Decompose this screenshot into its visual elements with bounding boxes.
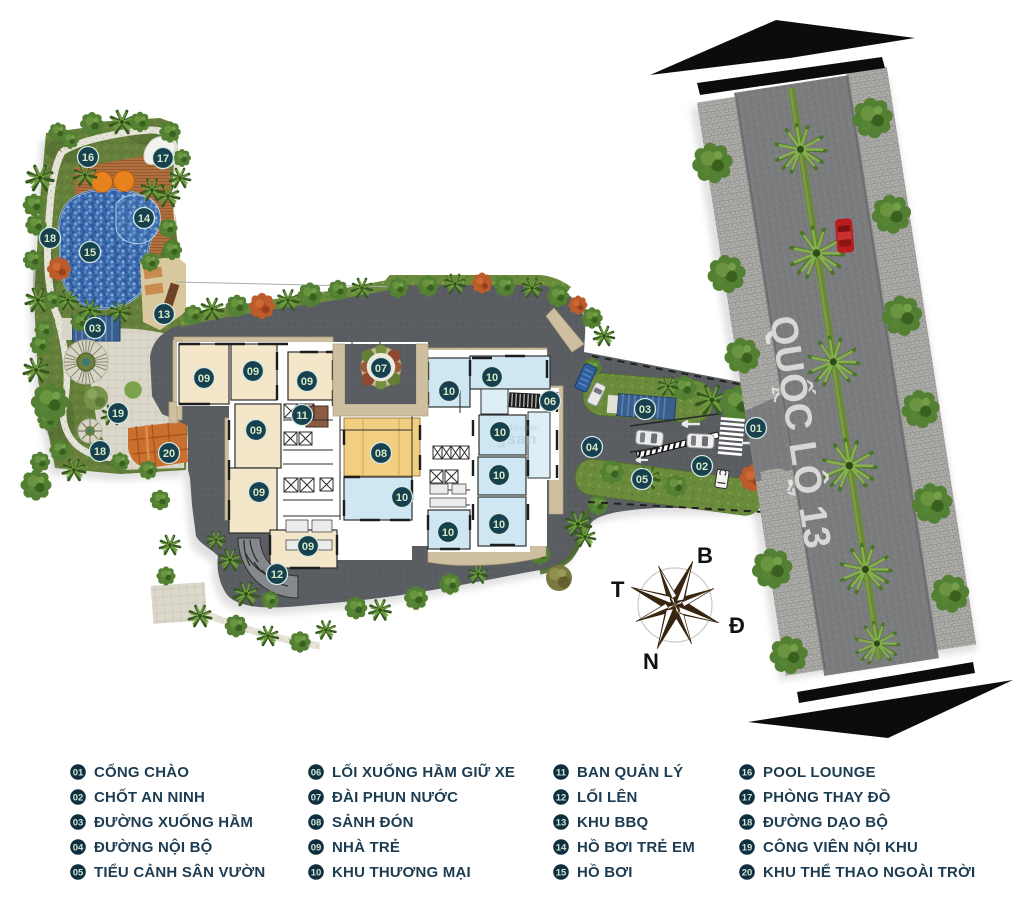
svg-text:19: 19	[112, 408, 124, 420]
svg-text:09: 09	[250, 425, 262, 437]
svg-text:N: N	[643, 649, 659, 674]
svg-text:ĐƯỜNG NỘI BỘ: ĐƯỜNG NỘI BỘ	[94, 838, 213, 856]
svg-text:12: 12	[556, 793, 567, 804]
svg-text:02: 02	[696, 461, 708, 473]
svg-text:BAN QUẢN LÝ: BAN QUẢN LÝ	[577, 763, 683, 781]
svg-text:02: 02	[73, 793, 84, 804]
svg-text:KHU THỂ THAO NGOÀI TRỜI: KHU THỂ THAO NGOÀI TRỜI	[763, 863, 975, 881]
svg-text:14: 14	[556, 843, 567, 854]
svg-text:CHỐT AN NINH: CHỐT AN NINH	[94, 788, 205, 806]
svg-text:08: 08	[375, 448, 387, 460]
svg-text:10: 10	[494, 427, 506, 439]
svg-text:05: 05	[73, 868, 84, 879]
svg-text:09: 09	[311, 843, 322, 854]
svg-text:01: 01	[73, 768, 84, 779]
svg-text:10: 10	[443, 386, 455, 398]
svg-text:HỒ BƠI: HỒ BƠI	[577, 863, 633, 881]
svg-text:10: 10	[311, 868, 322, 879]
svg-text:06: 06	[544, 396, 556, 408]
svg-text:20: 20	[163, 448, 175, 460]
svg-text:11: 11	[556, 768, 567, 779]
svg-text:06: 06	[311, 768, 322, 779]
svg-text:10: 10	[486, 372, 498, 384]
svg-text:17: 17	[157, 153, 169, 165]
svg-text:09: 09	[247, 366, 259, 378]
svg-text:05: 05	[636, 474, 648, 486]
svg-text:18: 18	[44, 233, 56, 245]
svg-text:01: 01	[750, 423, 762, 435]
svg-text:NHÀ TRẺ: NHÀ TRẺ	[332, 839, 400, 856]
svg-text:HỒ BƠI TRẺ EM: HỒ BƠI TRẺ EM	[577, 838, 695, 856]
svg-text:T: T	[611, 577, 625, 602]
svg-text:12: 12	[271, 569, 283, 581]
svg-text:07: 07	[375, 363, 387, 375]
svg-text:ĐƯỜNG DẠO BỘ: ĐƯỜNG DẠO BỘ	[763, 813, 888, 831]
svg-text:POOL LOUNGE: POOL LOUNGE	[763, 764, 876, 781]
svg-text:19: 19	[742, 843, 753, 854]
svg-text:03: 03	[73, 818, 84, 829]
svg-text:16: 16	[82, 152, 94, 164]
svg-text:10: 10	[396, 492, 408, 504]
svg-text:07: 07	[311, 793, 322, 804]
svg-text:04: 04	[73, 843, 84, 854]
svg-text:11: 11	[296, 410, 308, 422]
svg-text:16: 16	[742, 768, 753, 779]
svg-text:18: 18	[742, 818, 753, 829]
svg-text:13: 13	[556, 818, 567, 829]
svg-text:KHU BBQ: KHU BBQ	[577, 814, 649, 831]
svg-text:03: 03	[639, 404, 651, 416]
svg-text:15: 15	[556, 868, 567, 879]
svg-text:09: 09	[301, 376, 313, 388]
svg-text:09: 09	[302, 541, 314, 553]
svg-text:03: 03	[89, 323, 101, 335]
svg-text:18: 18	[94, 446, 106, 458]
svg-text:TIỂU CẢNH SÂN VƯỜN: TIỂU CẢNH SÂN VƯỜN	[94, 863, 265, 881]
svg-text:20: 20	[742, 868, 753, 879]
svg-text:B: B	[697, 543, 713, 568]
svg-text:10: 10	[493, 519, 505, 531]
svg-text:ĐƯỜNG XUỐNG HẦM: ĐƯỜNG XUỐNG HẦM	[94, 813, 253, 831]
svg-text:KHU THƯƠNG MẠI: KHU THƯƠNG MẠI	[332, 864, 471, 881]
svg-text:10: 10	[442, 527, 454, 539]
svg-text:CÔNG VIÊN NỘI KHU: CÔNG VIÊN NỘI KHU	[763, 838, 918, 856]
svg-text:Đ: Đ	[729, 613, 745, 638]
svg-text:14: 14	[138, 213, 151, 225]
svg-text:SẢNH ĐÓN: SẢNH ĐÓN	[332, 813, 414, 831]
svg-text:LỐI XUỐNG HẦM GIỮ XE: LỐI XUỐNG HẦM GIỮ XE	[332, 763, 515, 781]
svg-text:15: 15	[84, 247, 96, 259]
svg-text:10: 10	[493, 470, 505, 482]
svg-text:ĐÀI PHUN NƯỚC: ĐÀI PHUN NƯỚC	[332, 788, 458, 806]
svg-text:04: 04	[586, 442, 599, 454]
svg-text:LỐI LÊN: LỐI LÊN	[577, 788, 638, 806]
svg-text:09: 09	[198, 373, 210, 385]
svg-text:13: 13	[158, 309, 170, 321]
svg-text:PHÒNG THAY ĐỒ: PHÒNG THAY ĐỒ	[763, 788, 891, 806]
svg-text:17: 17	[742, 793, 753, 804]
svg-text:08: 08	[311, 818, 322, 829]
svg-text:CỔNG CHÀO: CỔNG CHÀO	[94, 763, 189, 781]
svg-text:09: 09	[253, 487, 265, 499]
